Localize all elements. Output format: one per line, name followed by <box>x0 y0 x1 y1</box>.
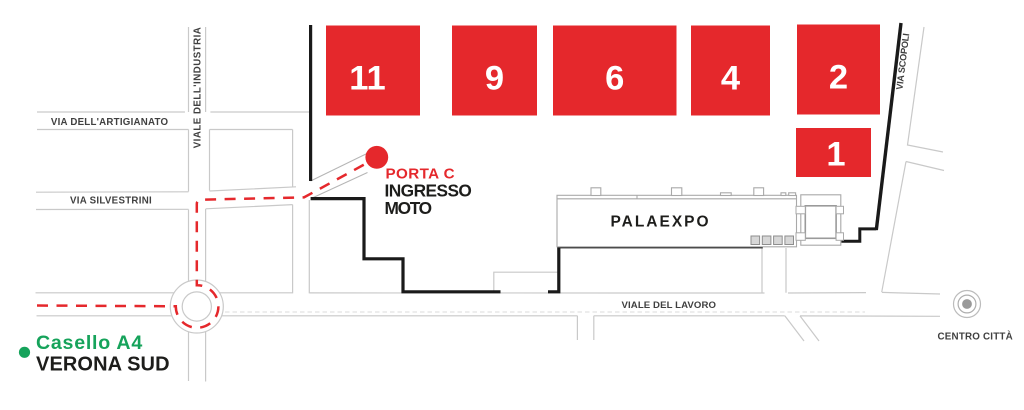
svg-text:2: 2 <box>829 59 848 97</box>
svg-text:MOTO: MOTO <box>385 198 432 218</box>
svg-text:CENTRO CITTÀ: CENTRO CITTÀ <box>938 330 1013 342</box>
svg-text:6: 6 <box>605 60 624 98</box>
svg-text:VIALE DEL LAVORO: VIALE DEL LAVORO <box>622 300 717 311</box>
svg-text:VIA DELL'ARTIGIANATO: VIA DELL'ARTIGIANATO <box>51 117 169 128</box>
svg-text:9: 9 <box>485 60 504 98</box>
svg-text:VIALE DELL'INDUSTRIA: VIALE DELL'INDUSTRIA <box>192 27 203 149</box>
svg-text:11: 11 <box>349 60 385 98</box>
svg-text:4: 4 <box>721 60 740 98</box>
svg-text:Casello A4: Casello A4 <box>36 332 143 354</box>
svg-text:VERONA SUD: VERONA SUD <box>36 353 170 375</box>
svg-text:VIA SILVESTRINI: VIA SILVESTRINI <box>70 196 152 207</box>
svg-text:1: 1 <box>826 136 845 174</box>
svg-text:PALAEXPO: PALAEXPO <box>610 214 710 231</box>
